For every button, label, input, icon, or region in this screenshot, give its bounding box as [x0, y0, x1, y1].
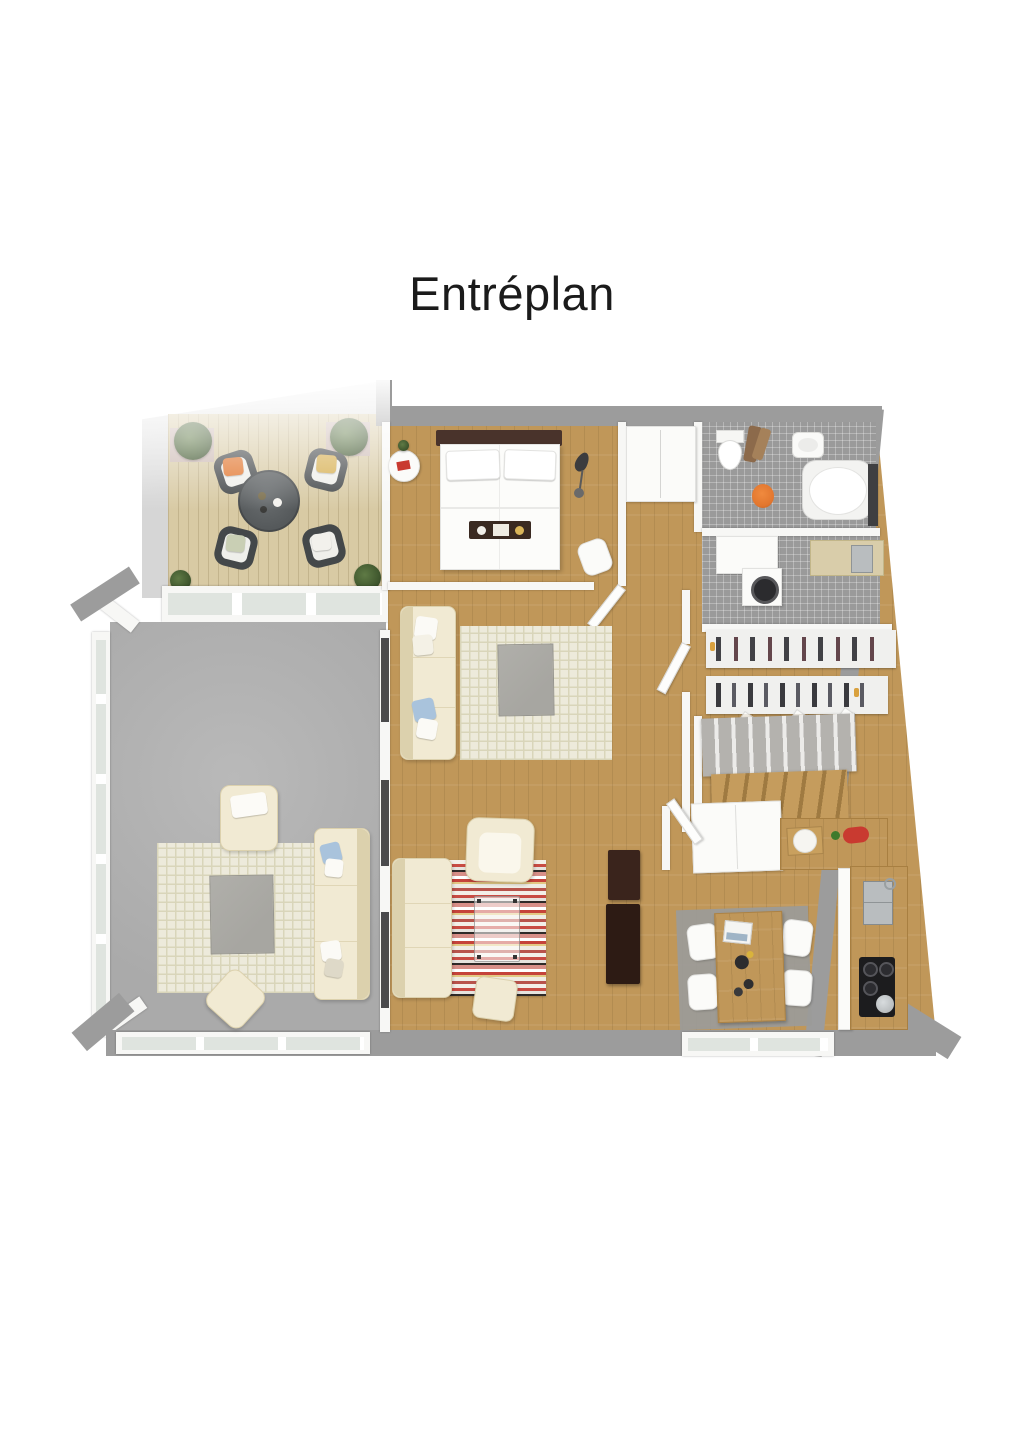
- table-leg: [477, 899, 481, 903]
- kitchen-bottom-window: [682, 1032, 834, 1056]
- bowl: [260, 506, 267, 513]
- tray-plate: [515, 526, 524, 535]
- kitchen-left-wall: [662, 806, 670, 870]
- breakfast-tray: [469, 521, 531, 539]
- white-pillow: [415, 717, 438, 740]
- stairs-carpet: [701, 713, 857, 776]
- window-dark-strip: [381, 912, 389, 1008]
- green-pillow: [225, 534, 246, 553]
- cushion-seam: [413, 657, 455, 658]
- sofa-backrest: [401, 607, 413, 759]
- footstool: [471, 975, 518, 1022]
- cushion-seam: [405, 903, 451, 904]
- bowl: [258, 492, 266, 500]
- kitchen-counter: [850, 866, 908, 1030]
- conservatory-bottom-window: [116, 1032, 370, 1054]
- window-glass: [96, 640, 106, 1014]
- fridge-freezer: [691, 800, 783, 873]
- gold-hook: [710, 642, 715, 651]
- bedside-table: [388, 450, 420, 482]
- laptop-keyboard: [726, 932, 748, 941]
- bathroom-bottom-wall: [702, 528, 880, 536]
- sofa-backrest: [357, 829, 369, 999]
- outdoor-table: [238, 470, 300, 532]
- green-jar: [831, 831, 840, 840]
- bathtub: [802, 460, 872, 520]
- lemon: [746, 951, 753, 958]
- white-pillow: [324, 858, 344, 878]
- sofa-backrest: [393, 859, 405, 997]
- armchair: [220, 785, 278, 851]
- table-leg: [513, 899, 517, 903]
- blanket-fold: [441, 507, 559, 509]
- cooking-pot: [876, 995, 894, 1013]
- cushion-seam: [315, 885, 357, 886]
- potted-plant: [174, 422, 212, 460]
- lamp-base: [574, 488, 584, 498]
- sink-basin: [798, 438, 818, 452]
- dining-table: [714, 911, 786, 1023]
- laundry-sink: [851, 545, 873, 573]
- red-canister: [842, 826, 870, 845]
- wardrobe-door-seam: [660, 430, 661, 498]
- closet-shelf: [706, 630, 896, 668]
- page-title: Entréplan: [0, 266, 1024, 321]
- red-book: [396, 460, 410, 471]
- faucet: [884, 878, 896, 890]
- table-leg: [477, 955, 481, 959]
- washer-door: [751, 576, 779, 604]
- tray-paper: [493, 524, 509, 536]
- cushion-seam: [405, 947, 451, 948]
- window-dark-strip: [381, 780, 389, 866]
- armchair-seat: [478, 832, 521, 873]
- floor-plan: [70, 380, 960, 1080]
- bathtub-basin: [809, 467, 867, 515]
- glass-coffee-table: [474, 896, 520, 962]
- window-glass: [122, 1037, 364, 1050]
- livingroom-right-wall: [682, 590, 690, 644]
- bathroom-sink: [792, 432, 824, 458]
- bedroom-bottom-wall: [388, 582, 594, 590]
- yellow-pillow: [316, 454, 337, 473]
- burner: [879, 962, 894, 977]
- bedside-plant: [398, 440, 409, 451]
- cooktop: [859, 957, 895, 1017]
- conservatory-window-wall: [92, 632, 110, 1022]
- floor-plan-page: Entréplan: [0, 0, 1024, 1448]
- dining-chair: [781, 969, 813, 1007]
- wardrobe-cabinet: [626, 426, 696, 502]
- potted-plant: [330, 418, 368, 456]
- terrace-door-glass: [168, 593, 382, 615]
- bathtub-panel: [868, 464, 878, 526]
- gray-pillow: [324, 958, 345, 979]
- tv-cabinet: [608, 850, 640, 900]
- toilet: [716, 430, 742, 470]
- white-pillow: [311, 533, 332, 552]
- corridor-left-wall: [618, 422, 626, 586]
- washing-machine: [742, 568, 782, 606]
- sink-divider: [864, 902, 892, 903]
- bed-pillow: [503, 449, 556, 481]
- outer-wall-stub: [376, 380, 392, 426]
- plate: [793, 829, 817, 853]
- armchair: [465, 817, 535, 883]
- floor-lamp: [570, 452, 590, 498]
- sofa: [314, 828, 370, 1000]
- window-glass: [688, 1038, 828, 1051]
- burner: [863, 962, 878, 977]
- plate: [734, 987, 743, 996]
- hanging-clothes: [716, 683, 876, 707]
- kitchen-counter: [780, 818, 888, 870]
- kitchen-sink: [863, 881, 893, 925]
- plate: [743, 979, 753, 989]
- orange-pillow: [222, 457, 244, 477]
- dining-chair: [780, 918, 815, 958]
- dining-chair: [687, 973, 719, 1011]
- coffee-table: [209, 874, 274, 954]
- bedroom-left-wall: [382, 422, 390, 590]
- laptop: [723, 920, 753, 945]
- coffee-table: [497, 644, 554, 717]
- cup: [273, 498, 282, 507]
- fridge-seam: [735, 805, 738, 869]
- sofa: [400, 606, 456, 760]
- laundry-basket: [752, 484, 774, 508]
- sofa: [392, 858, 452, 998]
- burner: [863, 981, 878, 996]
- toilet-bowl: [718, 440, 742, 470]
- terrace-door-band: [162, 586, 388, 622]
- double-bed: [440, 444, 560, 570]
- white-pillow: [412, 634, 434, 656]
- hanging-clothes: [716, 637, 886, 661]
- table-leg: [513, 955, 517, 959]
- bed-pillow: [445, 449, 500, 481]
- window-dark-strip: [381, 638, 389, 722]
- laundry-counter: [810, 540, 884, 576]
- white-pillow: [230, 792, 269, 819]
- gold-hook: [854, 688, 859, 697]
- tray-plate: [477, 526, 486, 535]
- tv-cabinet: [606, 904, 640, 984]
